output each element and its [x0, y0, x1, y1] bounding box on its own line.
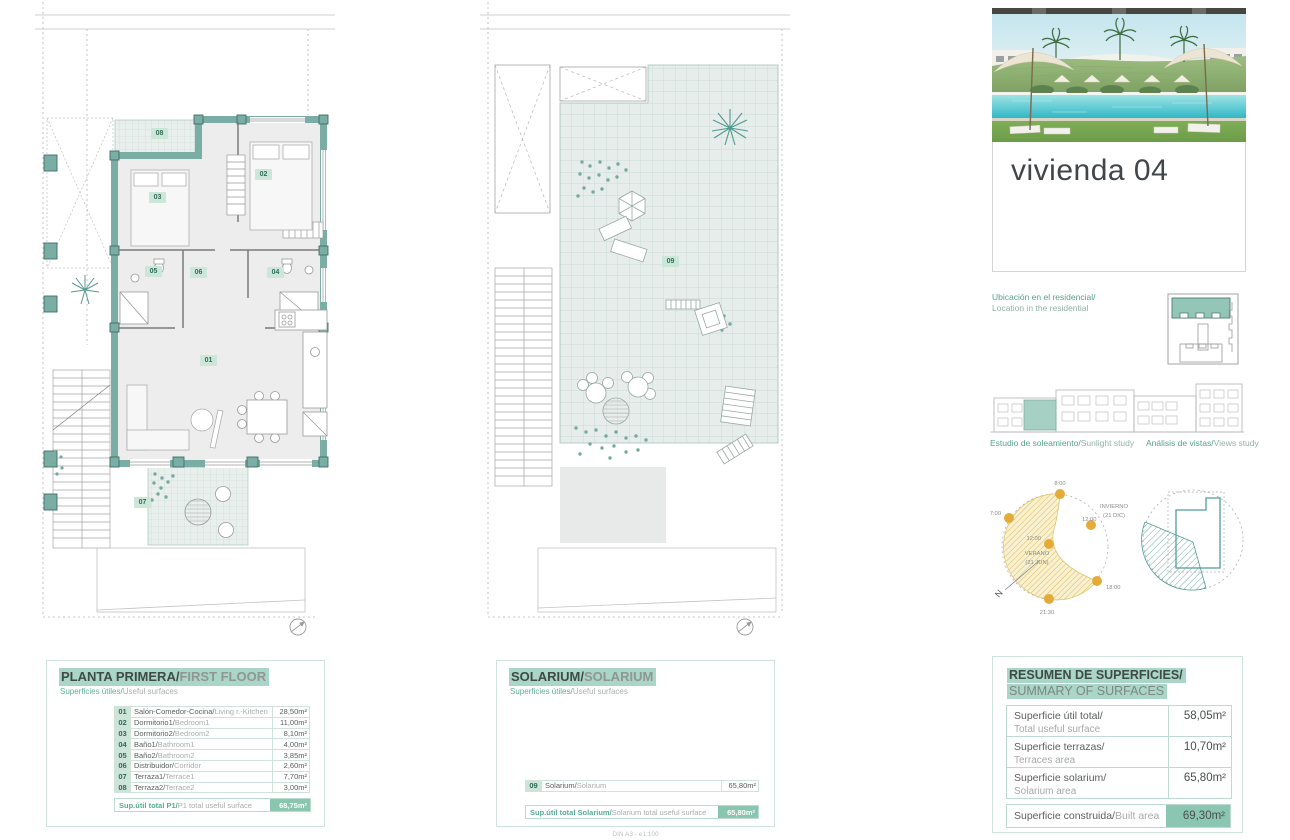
north-symbol — [290, 619, 306, 635]
room-label-06: 06 — [190, 267, 207, 278]
room-label-03: 03 — [149, 192, 166, 203]
first-floor-plan-drawing — [35, 0, 335, 648]
sunlight-study-title-en: Sunlight study — [1081, 438, 1134, 448]
elevation-drawing — [988, 368, 1246, 440]
sun-winter-label: INVIERNO — [1100, 504, 1129, 510]
first-floor-subtitle-en: Useful surfaces — [123, 687, 178, 696]
first-floor-rooms-table: 01Salón-Comedor-Cocina/Living r.-Kitchen… — [114, 706, 310, 793]
location-note-en: Location in the residential — [992, 303, 1095, 314]
table-row: 09Solarium/Solarium65,80m² — [526, 781, 759, 792]
north-label: N — [993, 588, 1005, 599]
table-row: 03Dormitorio2/Bedroom28,10m² — [115, 728, 310, 739]
room-label-04: 04 — [267, 267, 284, 278]
sunlight-study-diagram: 8:00 7:00 12:00 12:00 18:00 21:30 VERANO… — [985, 452, 1137, 624]
first-floor-table-subtitle: Superficies útiles/Useful surfaces — [60, 687, 178, 696]
room-label-01: 01 — [200, 355, 217, 366]
built-area-label-es: Superficie construida/ — [1014, 810, 1115, 822]
first-floor-total-row: Sup.útil total P1/P1 total useful surfac… — [114, 798, 311, 812]
unit-title: vivienda 04 — [1011, 154, 1168, 188]
table-row: 04Baño1/Bathroom14,00m² — [115, 739, 310, 750]
table-row: 01Salón-Comedor-Cocina/Living r.-Kitchen… — [115, 707, 310, 718]
solarium-subtitle-es: Superficies útiles/ — [510, 687, 573, 696]
sun-summer-date: (21 JUN) — [1025, 560, 1048, 566]
table-row: 02Dormitorio1/Bedroom111,00m² — [115, 717, 310, 728]
views-study-title-en: Views study — [1214, 438, 1259, 448]
room-label-05: 05 — [145, 266, 162, 277]
sun-time-1200-winter: 12:00 — [1082, 517, 1097, 523]
first-floor-title-en: FIRST FLOOR — [179, 669, 266, 684]
first-floor-total-value: 68,75m² — [270, 799, 310, 811]
plan-sheet: 08 02 03 05 06 04 01 07 — [0, 0, 1290, 840]
built-area-row: Superficie construida/Built area 69,30m² — [1006, 804, 1231, 828]
first-floor-total-label-es: Sup.útil total P1/ — [119, 801, 178, 810]
solarium-table-title: SOLARIUM/SOLARIUM — [509, 669, 656, 684]
first-floor-title-es: PLANTA PRIMERA/ — [61, 669, 179, 684]
room-label-07: 07 — [134, 497, 151, 508]
solarium-plan-area: 09 — [480, 0, 790, 648]
table-row: Superficie solarium/Solarium area 65,80m… — [1007, 768, 1232, 799]
solarium-total-label-es: Sup.útil total Solarium/ — [530, 808, 612, 817]
sun-winter-date: (21 DIC) — [1103, 513, 1125, 519]
solarium-total-label-en: Solarium total useful surface — [612, 808, 707, 817]
location-note: Ubicación en el residencial/ Location in… — [992, 292, 1095, 314]
residential-render-photo — [992, 8, 1246, 142]
table-row: 05Baño2/Bathroom23,85m² — [115, 750, 310, 761]
location-note-es: Ubicación en el residencial/ — [992, 292, 1095, 303]
solarium-total-value: 65,80m² — [718, 806, 758, 818]
solarium-title-en: SOLARIUM — [584, 669, 653, 684]
solarium-table-subtitle: Superficies útiles/Useful surfaces — [510, 687, 628, 696]
room-label-02: 02 — [255, 169, 272, 180]
sun-time-1200-summer: 12:00 — [1026, 536, 1041, 542]
solarium-title-es: SOLARIUM/ — [511, 669, 584, 684]
built-area-label-en: Built area — [1115, 810, 1159, 822]
solarium-table-panel: SOLARIUM/SOLARIUM Superficies útiles/Use… — [496, 660, 775, 827]
first-floor-table-title: PLANTA PRIMERA/FIRST FLOOR — [59, 669, 269, 684]
first-floor-table-panel: PLANTA PRIMERA/FIRST FLOOR Superficies ú… — [46, 660, 325, 827]
sunlight-study-title: Estudio de soleamiento/Sunlight study — [990, 438, 1134, 448]
solarium-rooms-table: 09Solarium/Solarium65,80m² — [525, 780, 759, 792]
views-study-title-es: Análisis de vistas/ — [1146, 438, 1214, 448]
first-floor-plan-area: 08 02 03 05 06 04 01 07 — [35, 0, 335, 648]
summary-title-es: RESUMEN DE SUPERFICIES/ — [1007, 668, 1186, 683]
summary-title: RESUMEN DE SUPERFICIES/ SUMMARY OF SURFA… — [1007, 667, 1186, 699]
north-symbol — [737, 619, 753, 635]
sunlight-study-title-es: Estudio de soleamiento/ — [990, 438, 1081, 448]
table-row: 06Distribuidor/Corridor2,60m² — [115, 760, 310, 771]
scale-note: DIN A3 - e1:100 — [496, 831, 775, 838]
solarium-total-row: Sup.útil total Solarium/Solarium total u… — [525, 805, 759, 819]
room-label-08: 08 — [151, 128, 168, 139]
sun-time-1800: 18:00 — [1106, 585, 1121, 591]
first-floor-subtitle-es: Superficies útiles/ — [60, 687, 123, 696]
first-floor-total-label-en: P1 total useful surface — [178, 801, 252, 810]
built-area-value: 69,30m² — [1166, 805, 1230, 827]
solarium-subtitle-en: Useful surfaces — [573, 687, 628, 696]
table-row: Superficie útil total/Total useful surfa… — [1007, 706, 1232, 737]
sun-time-0700: 7:00 — [990, 511, 1001, 517]
table-row: 08Terraza2/Terrace23,00m² — [115, 782, 310, 793]
solarium-plan-drawing — [480, 0, 790, 648]
summary-title-en: SUMMARY OF SURFACES — [1007, 684, 1167, 699]
sun-time-2130: 21:30 — [1040, 610, 1055, 616]
table-row: 07Terraza1/Terrace17,70m² — [115, 771, 310, 782]
site-location-map — [1166, 292, 1242, 368]
sun-summer-label: VERANO — [1025, 551, 1050, 557]
views-study-title: Análisis de vistas/Views study — [1146, 438, 1259, 448]
summary-table-panel: RESUMEN DE SUPERFICIES/ SUMMARY OF SURFA… — [992, 656, 1243, 833]
summary-surfaces-table: Superficie útil total/Total useful surfa… — [1006, 705, 1232, 799]
views-study-diagram — [1136, 452, 1256, 624]
unit-title-box: vivienda 04 — [992, 142, 1246, 272]
sun-time-0800: 8:00 — [1054, 481, 1065, 487]
room-label-09: 09 — [662, 256, 679, 267]
table-row: Superficie terrazas/Terraces area 10,70m… — [1007, 737, 1232, 768]
